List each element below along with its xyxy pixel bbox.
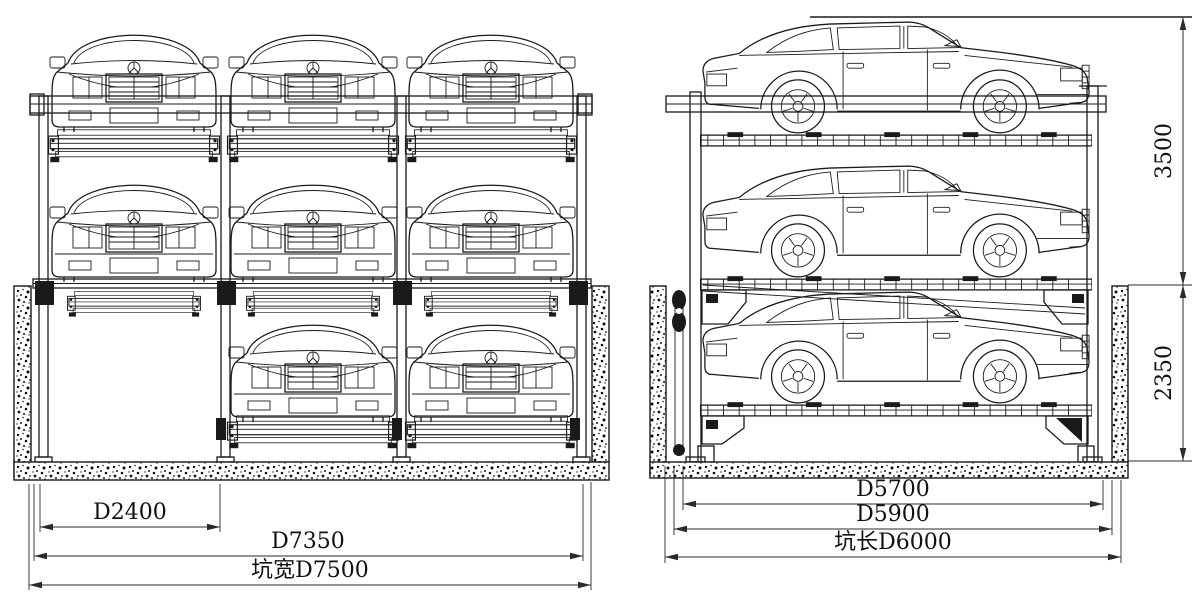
car-front-icon	[229, 35, 397, 132]
dimension-label: D5900	[856, 502, 930, 527]
side-view	[650, 17, 1192, 478]
drawing-canvas: D2400 D7350 坑宽D7500	[0, 0, 1200, 600]
car-front-icon	[407, 325, 575, 422]
car-front-icon	[50, 35, 218, 132]
car-front-icon	[229, 325, 397, 422]
car-side-icon	[703, 292, 1089, 403]
pit-wall-right	[592, 286, 609, 462]
car-side-icon	[703, 22, 1089, 133]
front-view-dimensions: D2400 D7350 坑宽D7500	[29, 482, 591, 590]
lift-cables	[675, 285, 1085, 448]
pit-floor	[14, 462, 609, 480]
pulley-block	[672, 290, 686, 456]
ground-rail	[33, 279, 591, 305]
dimension-label: D5700	[856, 477, 930, 502]
pit-wall-right	[1112, 286, 1128, 462]
pallet	[49, 130, 220, 162]
dimension-label: D2400	[93, 500, 167, 525]
car-front-icon	[407, 35, 575, 132]
pallet	[406, 130, 577, 162]
dimension-label: 坑宽D7500	[251, 558, 369, 583]
pallet	[228, 130, 399, 162]
car-front-icon	[229, 185, 397, 282]
car-side-icon	[703, 166, 1089, 277]
technical-drawing: D2400 D7350 坑宽D7500	[0, 0, 1200, 600]
deck	[700, 132, 1092, 146]
car-front-icon	[50, 185, 218, 282]
dimension-lift-height: 3500	[1152, 17, 1183, 285]
pit-wall-left	[650, 286, 666, 476]
dimension-label: 2350	[1152, 345, 1177, 401]
dimension-label: D7350	[271, 529, 345, 554]
dimension-label: 坑长D6000	[834, 530, 952, 555]
deck	[700, 276, 1092, 290]
top-beam-side	[666, 96, 1106, 112]
dimension-label: 3500	[1152, 123, 1177, 179]
front-view	[14, 35, 609, 480]
pallet	[425, 291, 558, 316]
pallet	[247, 291, 380, 316]
pit-brackets	[698, 416, 1094, 462]
pit-wall-left	[14, 286, 31, 476]
pallet	[68, 291, 201, 316]
car-front-icon	[407, 185, 575, 282]
dimension-bay-width: D2400	[40, 484, 220, 532]
dimension-pit-depth: 2350	[1152, 285, 1183, 461]
deck	[700, 402, 1092, 416]
pit-floor	[650, 462, 1128, 478]
top-beam	[30, 94, 592, 115]
